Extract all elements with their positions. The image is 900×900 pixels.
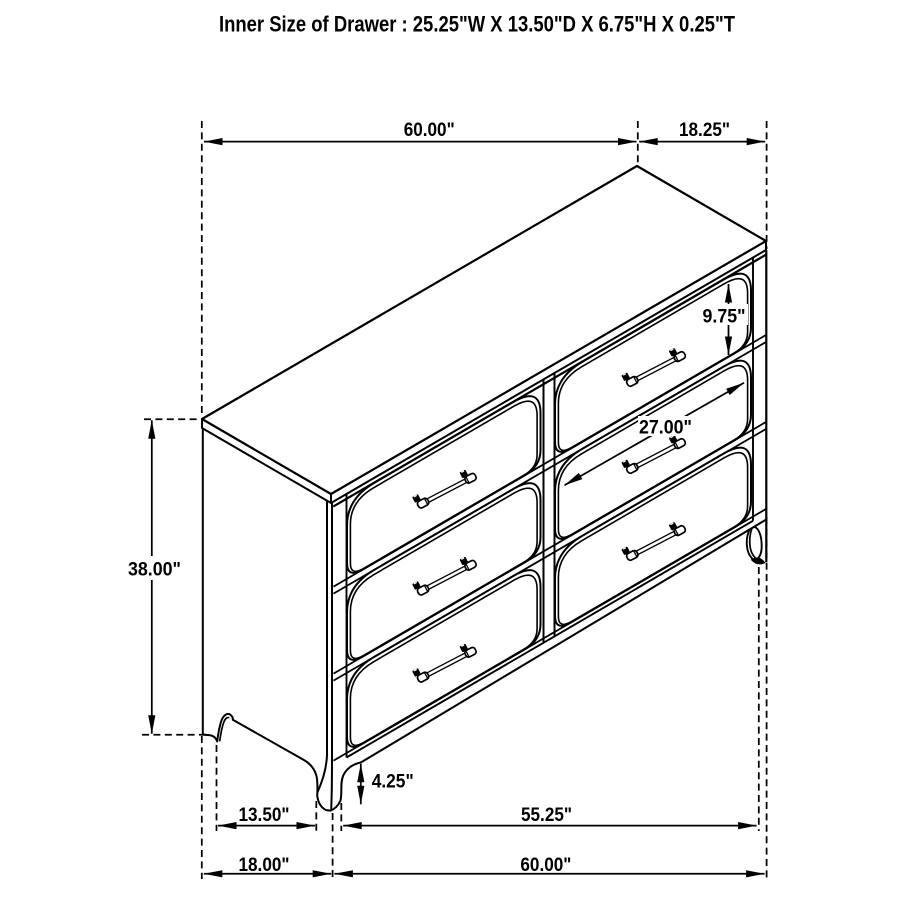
svg-text:38.00": 38.00" (128, 559, 181, 581)
svg-text:60.00": 60.00" (520, 854, 571, 876)
svg-text:27.00": 27.00" (639, 417, 692, 439)
svg-text:18.00": 18.00" (239, 854, 290, 876)
svg-text:Inner Size of Drawer : 25.25"W: Inner Size of Drawer : 25.25"W X 13.50"D… (219, 12, 735, 37)
svg-text:4.25": 4.25" (372, 771, 414, 793)
svg-text:13.50": 13.50" (239, 804, 290, 826)
svg-text:60.00": 60.00" (404, 119, 455, 141)
svg-text:9.75": 9.75" (703, 306, 746, 328)
svg-text:18.25": 18.25" (679, 119, 730, 141)
svg-text:55.25": 55.25" (521, 804, 572, 826)
